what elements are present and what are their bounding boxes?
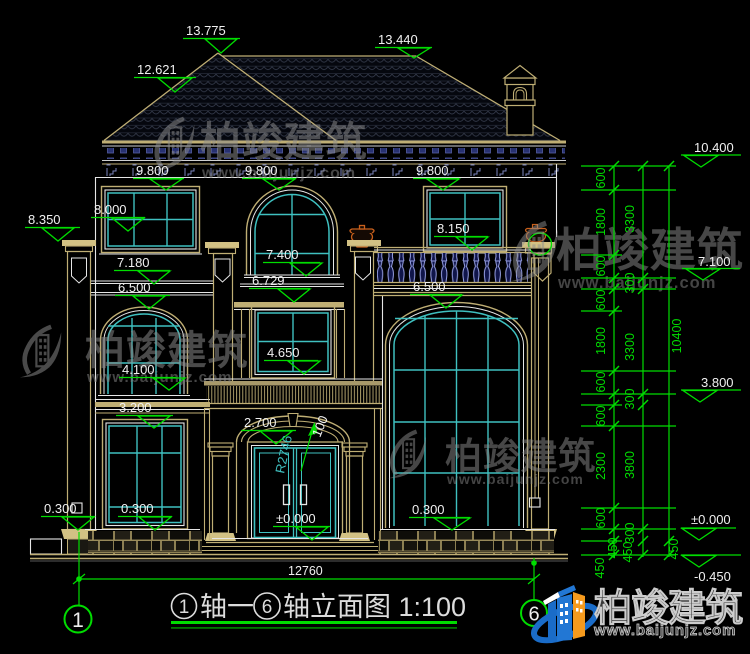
svg-text:±0.000: ±0.000 [276,511,316,526]
svg-text:600: 600 [594,256,608,277]
svg-text:13.775: 13.775 [186,23,226,38]
svg-text:7.180: 7.180 [117,255,150,270]
svg-text:450: 450 [621,542,635,563]
svg-text:450: 450 [606,538,620,559]
svg-text:12760: 12760 [288,564,323,578]
svg-text:9.800: 9.800 [245,163,278,178]
svg-text:3300: 3300 [623,205,637,233]
svg-text:10400: 10400 [670,319,684,354]
svg-text:-0.450: -0.450 [694,569,731,584]
svg-text:600: 600 [594,372,608,393]
svg-text:12.621: 12.621 [137,62,177,77]
svg-text:轴立面图 1:100: 轴立面图 1:100 [283,592,466,622]
svg-text:450: 450 [667,539,681,560]
svg-text:9.800: 9.800 [416,163,449,178]
svg-text:1: 1 [179,597,190,618]
svg-text:0.300: 0.300 [44,501,77,516]
svg-text:6.500: 6.500 [413,279,446,294]
svg-text:1: 1 [72,609,84,632]
svg-text:9.800: 9.800 [136,163,169,178]
svg-text:600: 600 [594,406,608,427]
svg-text:6: 6 [262,597,273,618]
svg-text:www.baijunjz.com: www.baijunjz.com [446,471,584,487]
svg-text:±0.000: ±0.000 [691,512,731,527]
svg-text:8.350: 8.350 [28,212,61,227]
svg-text:4.100: 4.100 [122,362,155,377]
svg-text:7.100: 7.100 [698,254,731,269]
svg-text:3.200: 3.200 [119,400,152,415]
svg-text:8.000: 8.000 [94,202,127,217]
svg-text:3300: 3300 [623,333,637,361]
svg-text:8.150: 8.150 [437,221,470,236]
svg-text:1800: 1800 [594,327,608,355]
svg-text:0.300: 0.300 [412,502,445,517]
svg-text:7.400: 7.400 [266,247,299,262]
svg-text:10.400: 10.400 [694,140,734,155]
svg-text:2300: 2300 [594,452,608,480]
svg-text:13.440: 13.440 [378,32,418,47]
svg-text:3.800: 3.800 [701,375,734,390]
svg-text:600: 600 [594,168,608,189]
svg-text:300: 300 [623,389,637,410]
svg-text:轴一: 轴一 [200,592,254,622]
svg-text:2.700: 2.700 [244,415,277,430]
svg-text:300: 300 [623,273,637,294]
svg-text:4.650: 4.650 [267,345,300,360]
svg-text:www.baijunjz.com: www.baijunjz.com [593,622,736,639]
svg-text:3800: 3800 [623,451,637,479]
svg-text:600: 600 [594,508,608,529]
svg-text:300: 300 [623,523,637,544]
svg-text:柏竣建筑: 柏竣建筑 [85,329,248,373]
svg-text:450: 450 [593,558,607,579]
svg-text:6.729: 6.729 [252,273,285,288]
svg-text:0.300: 0.300 [121,501,154,516]
svg-text:柏竣建筑: 柏竣建筑 [200,119,367,165]
svg-text:600: 600 [594,290,608,311]
svg-text:1800: 1800 [594,208,608,236]
svg-text:6.500: 6.500 [118,280,151,295]
